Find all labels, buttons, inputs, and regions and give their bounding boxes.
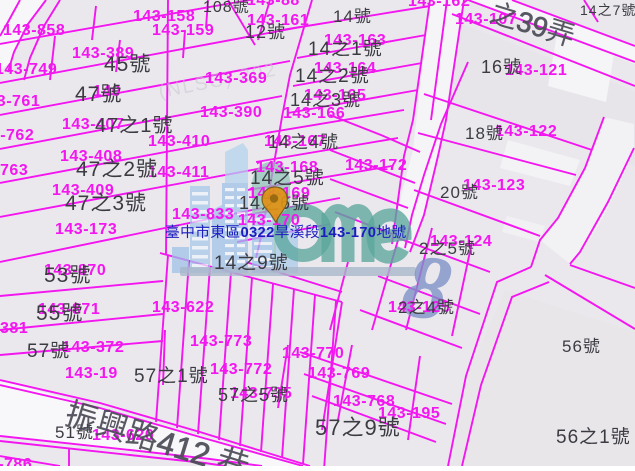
svg-text:143-622: 143-622 <box>152 299 214 316</box>
svg-text:143-749: 143-749 <box>0 61 57 78</box>
svg-text:14: 14 <box>290 90 312 110</box>
svg-text:5: 5 <box>293 168 305 189</box>
svg-text:9: 9 <box>365 415 378 440</box>
svg-text:143-173: 143-173 <box>55 221 117 238</box>
svg-text:143-390: 143-390 <box>200 104 262 121</box>
svg-text:1: 1 <box>177 366 189 387</box>
svg-text:143-763: 143-763 <box>0 162 28 179</box>
svg-text:14: 14 <box>580 2 598 18</box>
svg-text:47: 47 <box>95 115 119 137</box>
svg-text:108: 108 <box>203 0 233 16</box>
svg-text:57: 57 <box>134 366 157 387</box>
svg-text:143-369: 143-369 <box>205 70 267 87</box>
svg-text:56: 56 <box>562 337 583 356</box>
svg-text:56: 56 <box>556 427 579 448</box>
svg-text:14: 14 <box>250 168 273 189</box>
svg-text:7: 7 <box>613 2 622 18</box>
svg-text:143-162: 143-162 <box>408 0 470 10</box>
svg-text:14: 14 <box>333 7 354 26</box>
svg-text:143-195: 143-195 <box>378 405 440 422</box>
svg-text:3: 3 <box>331 90 342 110</box>
svg-text:143-772: 143-772 <box>210 361 272 378</box>
svg-text:2: 2 <box>419 239 429 258</box>
svg-text:143-770: 143-770 <box>282 345 344 362</box>
svg-text:47: 47 <box>65 192 90 215</box>
svg-text:143-159: 143-159 <box>152 22 214 39</box>
svg-text:47: 47 <box>75 83 100 106</box>
svg-text:2: 2 <box>398 298 408 317</box>
svg-text:2: 2 <box>338 66 350 87</box>
svg-text:143-411: 143-411 <box>148 164 209 181</box>
svg-text:4: 4 <box>427 298 437 317</box>
svg-text:143-170: 143-170 <box>320 225 376 241</box>
svg-text:14: 14 <box>239 193 261 213</box>
svg-text:143-381: 143-381 <box>0 320 28 337</box>
svg-text:143-88: 143-88 <box>247 0 300 9</box>
svg-text:1: 1 <box>351 39 363 60</box>
svg-text:143-107: 143-107 <box>455 11 517 28</box>
svg-text:1: 1 <box>140 115 152 137</box>
svg-text:1: 1 <box>599 427 611 448</box>
svg-text:143-172: 143-172 <box>345 157 407 174</box>
svg-text:143-122: 143-122 <box>495 123 557 140</box>
svg-text:5: 5 <box>259 385 270 405</box>
svg-text:14: 14 <box>295 66 318 87</box>
svg-text:55: 55 <box>36 302 61 325</box>
svg-text:143-410: 143-410 <box>148 133 210 150</box>
svg-text:12: 12 <box>245 22 267 42</box>
svg-text:143-769: 143-769 <box>308 365 370 382</box>
svg-text:3: 3 <box>112 192 125 215</box>
svg-text:2: 2 <box>123 158 136 181</box>
svg-text:16: 16 <box>481 57 503 77</box>
svg-text:57: 57 <box>315 415 341 440</box>
svg-text:9: 9 <box>257 253 269 274</box>
svg-text:143-858: 143-858 <box>3 22 65 39</box>
svg-text:20: 20 <box>440 183 461 202</box>
svg-text:143-372: 143-372 <box>62 339 124 356</box>
svg-text:14: 14 <box>308 39 331 60</box>
svg-text:143-19: 143-19 <box>65 365 118 382</box>
svg-text:143-773: 143-773 <box>190 333 252 350</box>
svg-text:143-761: 143-761 <box>0 93 40 110</box>
svg-text:14: 14 <box>214 253 237 274</box>
svg-text:143-762: 143-762 <box>0 127 34 144</box>
svg-text:14: 14 <box>268 132 290 152</box>
svg-text:47: 47 <box>76 158 101 181</box>
svg-text:143-786: 143-786 <box>0 456 32 466</box>
svg-text:18: 18 <box>465 124 486 143</box>
svg-text:143-833: 143-833 <box>172 206 234 223</box>
svg-text:5: 5 <box>448 239 458 258</box>
svg-text:57: 57 <box>218 385 240 405</box>
svg-text:0322: 0322 <box>241 225 275 241</box>
svg-text:4: 4 <box>309 132 320 152</box>
svg-text:45: 45 <box>104 53 129 76</box>
svg-text:53: 53 <box>44 264 69 287</box>
svg-text:57: 57 <box>27 341 50 362</box>
